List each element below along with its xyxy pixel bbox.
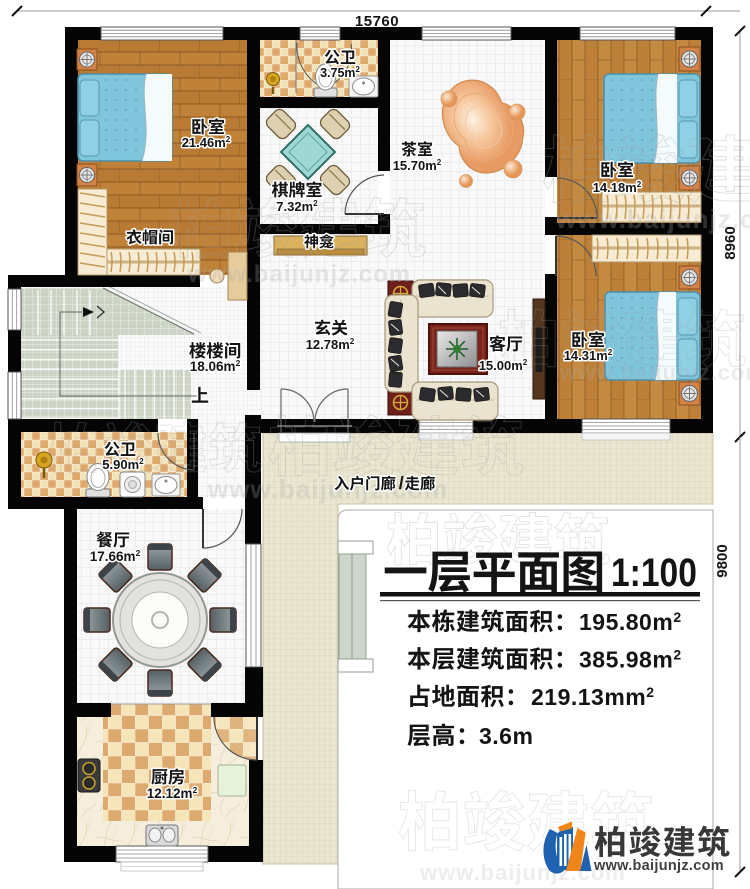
svg-text:/: / (399, 473, 404, 493)
svg-text:18.06m2: 18.06m2 (190, 358, 241, 374)
svg-text:14.31m2: 14.31m2 (564, 348, 613, 363)
svg-text:17.66m2: 17.66m2 (90, 548, 141, 564)
svg-text:5.90m2: 5.90m2 (102, 457, 144, 472)
svg-text:1:100: 1:100 (611, 550, 697, 594)
svg-text:15760: 15760 (355, 13, 399, 30)
svg-text:3.75m2: 3.75m2 (320, 65, 360, 80)
svg-text:385.98m2: 385.98m2 (579, 647, 682, 673)
svg-text:www.baijunjz.com: www.baijunjz.com (559, 360, 750, 385)
svg-text:www.baijunjz.com: www.baijunjz.com (187, 261, 411, 288)
svg-text:7.32m2: 7.32m2 (276, 199, 318, 214)
svg-text:219.13mm2: 219.13mm2 (531, 684, 655, 710)
svg-text:15.00m2: 15.00m2 (479, 358, 528, 373)
svg-text:15.70m2: 15.70m2 (393, 158, 442, 173)
svg-text:21.46m2: 21.46m2 (182, 135, 231, 150)
svg-text:9800: 9800 (714, 544, 731, 577)
svg-text:14.18m2: 14.18m2 (593, 180, 642, 195)
svg-text:195.80m2: 195.80m2 (579, 609, 682, 635)
svg-text:8960: 8960 (722, 226, 739, 259)
svg-text:www.baijunjz.com: www.baijunjz.com (555, 204, 750, 234)
svg-text:www.baijunjz.com: www.baijunjz.com (593, 858, 724, 874)
svg-text:12.12m2: 12.12m2 (147, 785, 198, 801)
svg-text:3.6m: 3.6m (479, 723, 533, 749)
svg-text:12.78m2: 12.78m2 (306, 337, 355, 352)
